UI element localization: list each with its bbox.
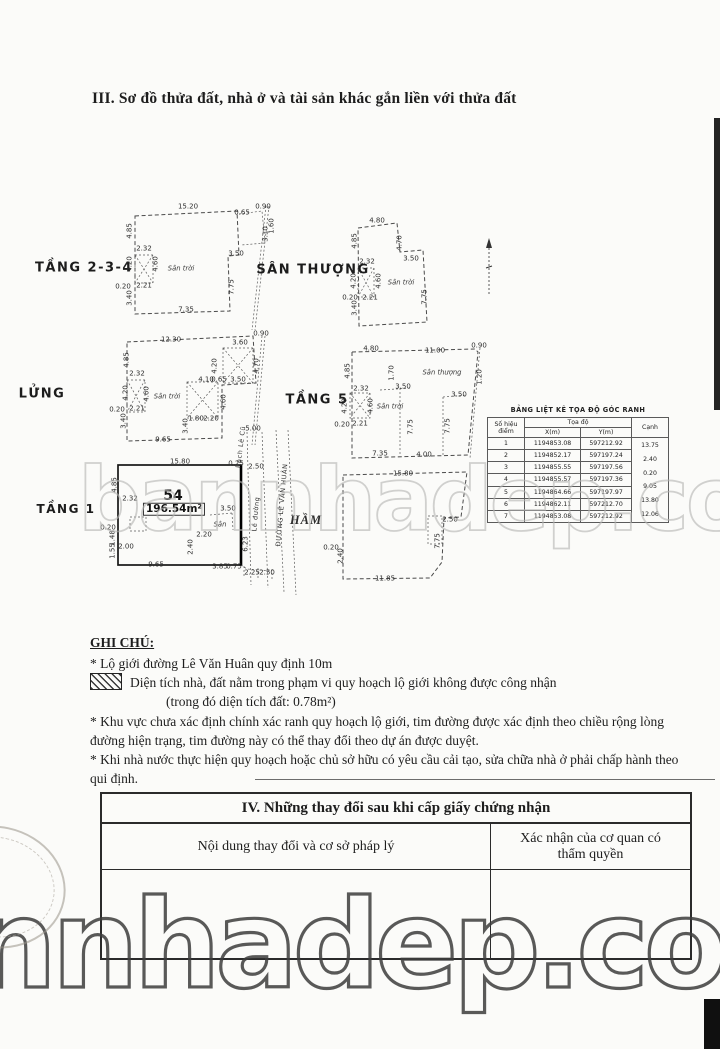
dimension-label: 9.65 — [148, 562, 164, 569]
hatch-legend-icon — [90, 673, 122, 690]
dimension-label: 11.85 — [375, 576, 395, 583]
note-text: * Lộ giới đường Lê Văn Huân quy định 10m — [90, 656, 332, 671]
dimension-label: 7.75 — [408, 419, 415, 435]
dimension-label: 0.20 — [334, 422, 350, 429]
dimension-label: 4.85 — [127, 223, 134, 239]
area-label: Sân — [214, 522, 227, 529]
coord-cell: 3 — [488, 462, 525, 474]
dimension-label: 2.32 — [359, 259, 375, 266]
dimension-label: 4.20 — [212, 358, 219, 374]
dimension-label: 4.85 — [345, 363, 352, 379]
dimension-label: 7.75 — [445, 418, 452, 434]
dimension-label: 2.40 — [188, 539, 195, 555]
dimension-label: 0.90 — [255, 204, 271, 211]
dimension-label: 7.35 — [372, 451, 388, 458]
street-label: ĐƯỜNG LÊ VĂN HUÂN — [275, 463, 289, 547]
coord-cell: 597197.97 — [581, 486, 632, 498]
scan-line-artifact — [255, 779, 715, 780]
coord-cell: 597197.56 — [581, 462, 632, 474]
scan-corner-black — [704, 999, 720, 1049]
edge-length: 13.80 — [634, 497, 666, 504]
dimension-label: 1.70 — [389, 365, 396, 381]
dimension-label: 2.32 — [129, 371, 145, 378]
dimension-label: 7.35 — [178, 307, 194, 314]
coord-cell: 2 — [488, 450, 525, 462]
floor-plan-labels: TẦNG 2-3-4SÂN THƯỢNGLỬNGTẦNG 5TẦNG 1HẦMS… — [0, 0, 720, 660]
dimension-label: 9.65 — [155, 437, 171, 444]
floor-label: HẦM — [290, 514, 322, 527]
note-text: * Khu vực chưa xác định chính xác ranh q… — [90, 714, 664, 748]
dimension-label: 4.60 — [376, 273, 383, 289]
dimension-label: 1.60 — [269, 218, 276, 234]
coord-cell: 1 — [488, 438, 525, 450]
col-header-edge: Cạnh — [632, 418, 669, 438]
dimension-label: 12.30 — [161, 337, 181, 344]
dimension-label: 15.80 — [170, 459, 190, 466]
dimension-label: 4.00 — [416, 452, 432, 459]
dimension-label: 3.50 — [403, 256, 419, 263]
note-item: * Khi nhà nước thực hiện quy hoạch hoặc … — [90, 750, 682, 788]
edge-length: 2.40 — [634, 456, 666, 463]
dimension-label: 7.75 — [422, 289, 429, 305]
edge-length: 13.75 — [634, 442, 666, 449]
coord-cell: 1194853.08 — [525, 438, 581, 450]
dimension-label: 4.20 — [342, 398, 349, 414]
note-text: (trong đó diện tích đất: 0.78m²) — [128, 694, 336, 709]
dimension-label: 11.00 — [425, 348, 445, 355]
coord-cell: 597197.24 — [581, 450, 632, 462]
parcel-area: 196.54m² — [143, 503, 205, 516]
coord-cell: 1194862.11 — [525, 498, 581, 510]
coord-cell: 6 — [488, 498, 525, 510]
col-header-x: X(m) — [525, 428, 581, 438]
dimension-label: 2.32 — [122, 496, 138, 503]
coord-cell: 1194852.17 — [525, 450, 581, 462]
dimension-label: 4.85 — [124, 352, 131, 368]
dimension-label: 4.60 — [221, 394, 228, 410]
coord-cell: 1194864.66 — [525, 486, 581, 498]
area-label: Sân trời — [388, 280, 414, 287]
dimension-label: 4.80 — [369, 218, 385, 225]
dimension-label: 7.75 — [229, 279, 236, 295]
notes-list: * Lộ giới đường Lê Văn Huân quy định 10m… — [90, 654, 682, 788]
dimension-label: 3.50 — [228, 251, 244, 258]
edge-length: 0.20 — [634, 470, 666, 477]
area-label: Sân trời — [168, 266, 194, 273]
note-item: * Lộ giới đường Lê Văn Huân quy định 10m — [90, 654, 682, 673]
coordinate-table: BẢNG LIỆT KÊ TỌA ĐỘ GÓC RANH Số hiệu điể… — [487, 406, 669, 523]
note-item: * Khu vực chưa xác định chính xác ranh q… — [90, 712, 682, 750]
area-label: Sân trời — [154, 394, 180, 401]
dimension-label: 2.00 — [118, 544, 134, 551]
dimension-label: 2.50 — [442, 517, 458, 524]
note-text: Diện tích nhà, đất nằm trong phạm vi quy… — [130, 675, 557, 690]
dimension-label: 2.20 — [196, 532, 212, 539]
dimension-label: 4.20 — [127, 256, 134, 272]
dimension-label: 2.20 — [203, 416, 219, 423]
col-header-coords: Tọa độ — [525, 418, 632, 428]
edge-length: 12.06 — [634, 511, 666, 518]
dimension-label: 4.80 — [363, 346, 379, 353]
dimension-label: 3.50 — [395, 384, 411, 391]
floor-label: LỬNG — [19, 388, 66, 401]
dimension-label: 1.20 — [477, 369, 484, 385]
col-header-y: Y(m) — [581, 428, 632, 438]
dimension-label: 3.50 — [230, 377, 246, 384]
dimension-label: 3.40 — [127, 290, 134, 306]
section4-col2-header: Xác nhận của cơ quan có thẩm quyền — [491, 824, 690, 870]
section4-col2-body — [491, 870, 690, 958]
dimension-label: 3.40 — [183, 418, 190, 434]
dimension-label: 0.25 — [228, 461, 244, 468]
dimension-label: 4.60 — [368, 398, 375, 414]
dimension-label: 3.60 — [232, 340, 248, 347]
partial-seal-stamp — [0, 813, 77, 961]
document-page: III. Sơ đồ thửa đất, nhà ở và tài sản kh… — [0, 0, 720, 1049]
dimension-label: 2.25 — [244, 570, 260, 577]
dimension-label: 2.21 — [136, 283, 152, 290]
dimension-label: 1.55 — [110, 543, 117, 559]
dimension-label: 4.60 — [153, 256, 160, 272]
coord-cell: 1194855.55 — [525, 462, 581, 474]
dimension-label: 3.50 — [220, 506, 236, 513]
notes-heading: GHI CHÚ: — [90, 633, 682, 652]
coord-row: 11194853.08597212.9213.752.400.209.0513.… — [488, 438, 669, 450]
area-label: Sân trời — [377, 404, 403, 411]
coord-cell: 4 — [488, 474, 525, 486]
section4-title: IV. Những thay đổi sau khi cấp giấy chứn… — [102, 794, 690, 824]
dimension-label: 15.80 — [393, 471, 413, 478]
dimension-label: 5.00 — [245, 426, 261, 433]
dimension-label: 2.32 — [136, 246, 152, 253]
coord-cell: 597212.92 — [581, 438, 632, 450]
dimension-label: 2.50 — [259, 570, 275, 577]
dimension-label: 2.40 — [338, 548, 345, 564]
dimension-label: 1.80 — [188, 416, 204, 423]
coord-cell: 597212.70 — [581, 498, 632, 510]
section4-col1-body — [102, 870, 490, 958]
floor-label: TẦNG 1 — [37, 503, 96, 515]
dimension-label: 4.70 — [397, 235, 404, 251]
dimension-label: 0.65 — [234, 210, 250, 217]
area-label: Sân thượng — [422, 370, 461, 377]
dimension-label: 4.20 — [123, 385, 130, 401]
dimension-label: 4.70 — [254, 358, 261, 374]
coord-cell: 1194855.57 — [525, 474, 581, 486]
notes-section: GHI CHÚ: * Lộ giới đường Lê Văn Huân quy… — [90, 633, 682, 788]
dimension-label: 4.85 — [112, 477, 119, 493]
coord-cell: 1194853.08 — [525, 510, 581, 522]
coordinate-table-grid: Số hiệu điểm Tọa độ Cạnh X(m) Y(m) 11194… — [487, 417, 669, 523]
parcel-number: 54 — [163, 489, 182, 503]
dimension-label: 2.50 — [248, 464, 264, 471]
dimension-label: 7.75 — [435, 533, 442, 549]
dimension-label: 15.20 — [178, 204, 198, 211]
dimension-label: 0.65 — [211, 377, 227, 384]
note-text: * Khi nhà nước thực hiện quy hoạch hoặc … — [90, 752, 678, 786]
dimension-label: 3.40 — [121, 413, 128, 429]
dimension-label: 6.23 — [243, 536, 250, 552]
section4-table: IV. Những thay đổi sau khi cấp giấy chứn… — [100, 792, 692, 960]
dimension-label: 0.75 — [226, 564, 242, 571]
street-label: Lề đường — [251, 496, 261, 531]
coord-cell: 597212.92 — [581, 510, 632, 522]
coord-cell: 597197.36 — [581, 474, 632, 486]
dimension-label: 2.32 — [353, 386, 369, 393]
dimension-label: 4.60 — [144, 386, 151, 402]
scan-edge-bar — [714, 118, 720, 410]
coordinate-table-title: BẢNG LIỆT KÊ TỌA ĐỘ GÓC RANH — [487, 406, 669, 414]
dimension-label: 4.85 — [352, 233, 359, 249]
floor-label: TẦNG 5 — [285, 394, 348, 407]
col-header-point: Số hiệu điểm — [488, 418, 525, 438]
edge-length: 9.05 — [634, 483, 666, 490]
note-item: Diện tích nhà, đất nằm trong phạm vi quy… — [90, 673, 682, 692]
coord-cell: 7 — [488, 510, 525, 522]
dimension-label: 2.21 — [362, 295, 378, 302]
note-item: (trong đó diện tích đất: 0.78m²) — [90, 692, 682, 711]
coord-cell: 5 — [488, 486, 525, 498]
dimension-label: 0.90 — [253, 331, 269, 338]
dimension-label: 3.50 — [451, 392, 467, 399]
dimension-label: 4.20 — [351, 273, 358, 289]
dimension-label: 3.40 — [352, 300, 359, 316]
floor-label: TẦNG 2-3-4 — [35, 262, 133, 275]
section4-col1-header: Nội dung thay đổi và cơ sở pháp lý — [102, 824, 490, 870]
dimension-label: 0.90 — [471, 343, 487, 350]
dimension-label: 2.21 — [129, 406, 145, 413]
dimension-label: 2.21 — [352, 421, 368, 428]
edge-length-cell: 13.752.400.209.0513.8012.06 — [632, 438, 669, 523]
